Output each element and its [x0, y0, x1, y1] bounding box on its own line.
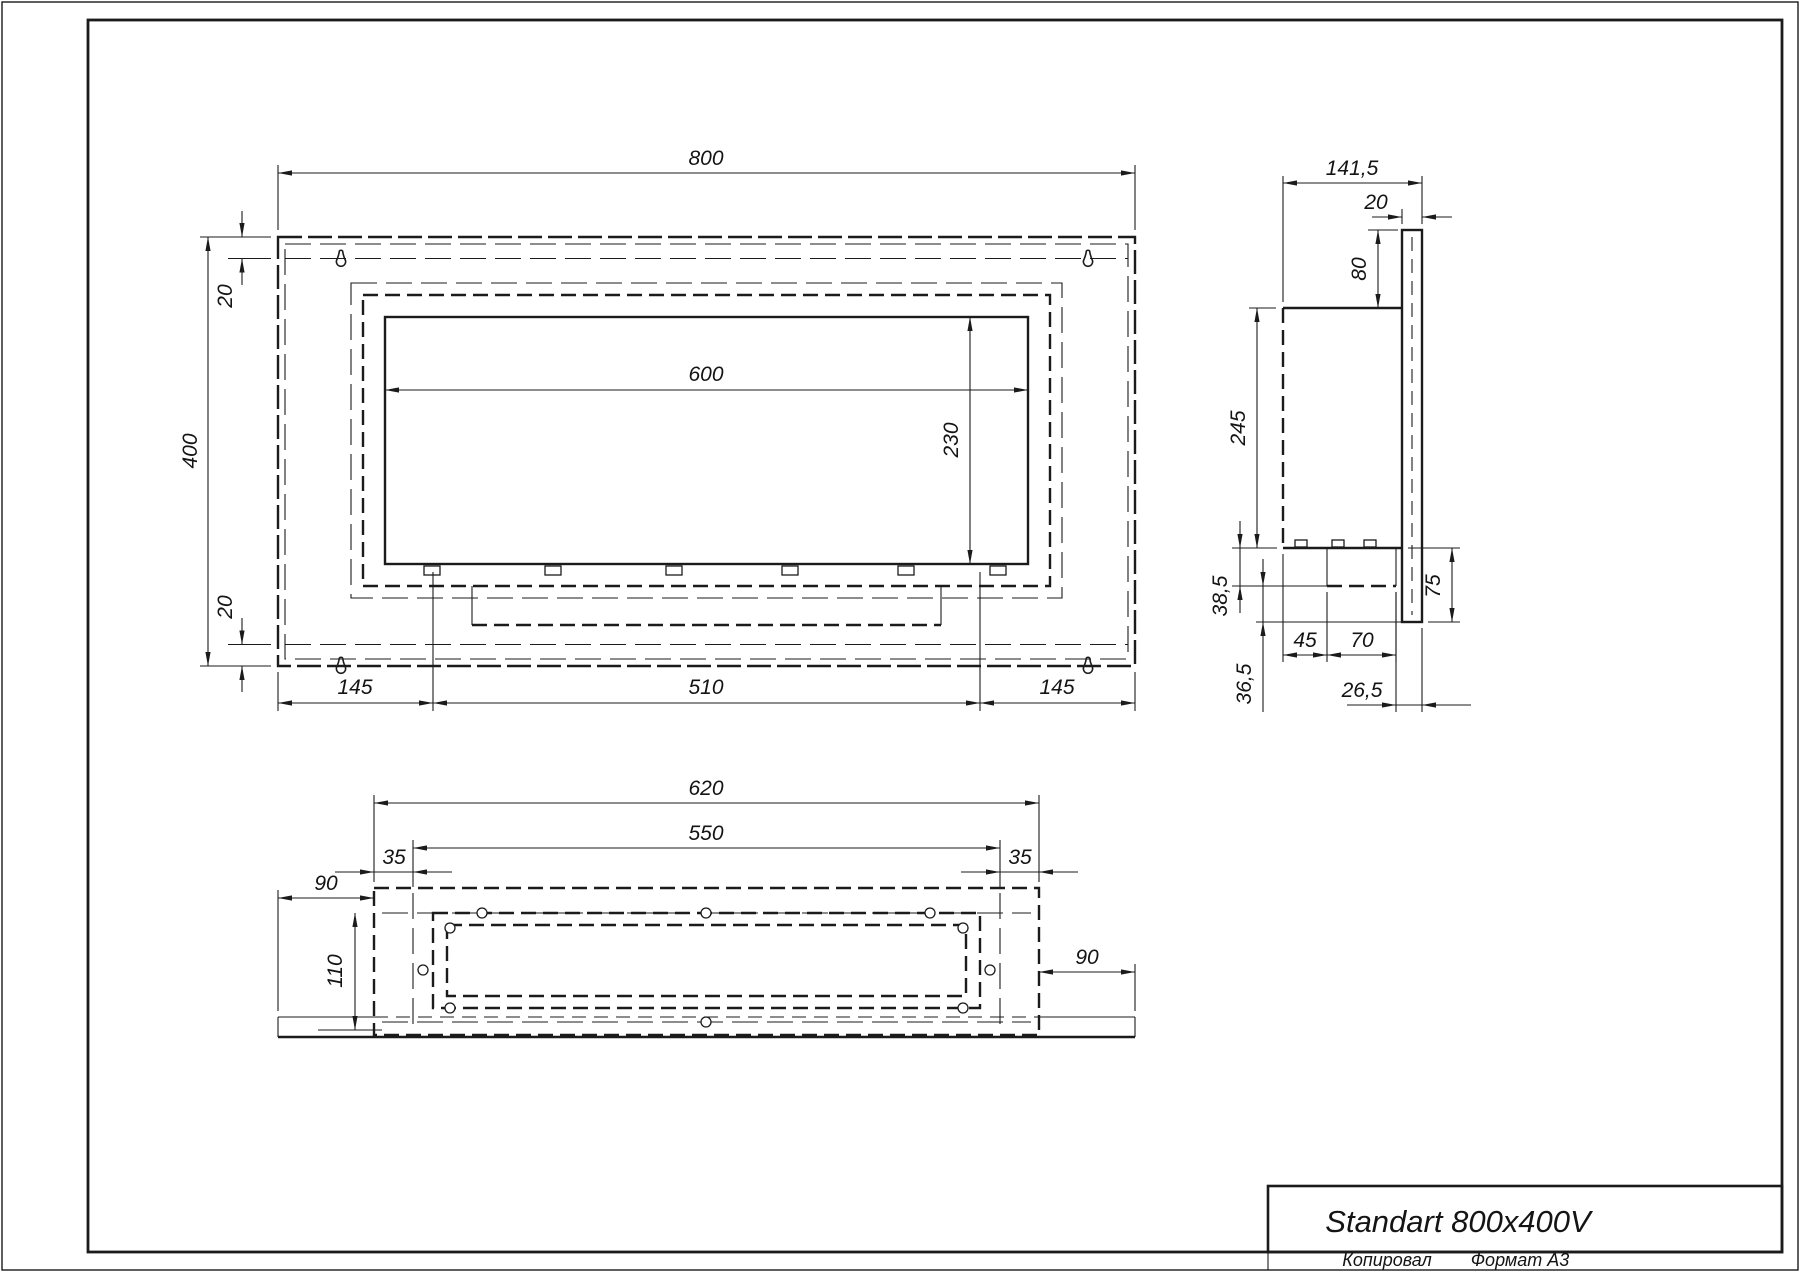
- drawing-frame: [88, 20, 1782, 1252]
- dim-side-lower-height: 75: [1422, 574, 1445, 598]
- vent-tab: [898, 566, 914, 575]
- dim-bottom-left-flange: 90: [314, 872, 338, 895]
- footer-copied-label: Копировал: [1342, 1250, 1432, 1270]
- sheet-outer-border: [2, 2, 1798, 1270]
- dim-side-body-height: 245: [1227, 410, 1250, 446]
- dim-front-left-margin: 145: [337, 676, 372, 699]
- dim-front-burner-width: 510: [688, 676, 723, 699]
- dim-front-overall-height: 400: [179, 433, 202, 468]
- drawing-title: Standart 800x400V: [1325, 1204, 1594, 1239]
- keyhole-slot-top-right: [1083, 250, 1092, 266]
- front-inner-face: [285, 244, 1128, 659]
- screw-hole: [418, 965, 428, 975]
- dim-front-overall-width: 800: [688, 147, 723, 170]
- dim-bottom-inner-depth: 110: [324, 954, 347, 988]
- dim-front-top-inset: 20: [214, 284, 237, 309]
- footer-format-label: Формат А3: [1471, 1250, 1570, 1270]
- bottom-burner-outline: [433, 913, 980, 1008]
- screw-hole: [445, 923, 455, 933]
- vent-tab: [782, 566, 798, 575]
- dim-bottom-left-inset: 35: [382, 846, 406, 869]
- dim-bottom-right-flange: 90: [1075, 946, 1099, 969]
- screw-hole: [701, 908, 711, 918]
- dim-side-lower-drop: 36,5: [1233, 663, 1256, 704]
- side-view: 141,5 20 80 245 38,5 36,5: [1209, 157, 1471, 712]
- dim-side-tray-offset: 45: [1293, 629, 1317, 652]
- front-view: 800 400 20 20 600 230 145 510 145: [179, 147, 1135, 711]
- dim-side-rear-gap: 26,5: [1341, 679, 1383, 702]
- dim-bottom-body-width: 620: [688, 777, 723, 800]
- screw-hole: [958, 923, 968, 933]
- drawing-sheet: 800 400 20 20 600 230 145 510 145: [0, 0, 1800, 1273]
- title-block: Standart 800x400V Копировал Формат А3: [1268, 1186, 1782, 1270]
- screw-hole: [925, 908, 935, 918]
- dim-side-top-offset: 80: [1348, 257, 1371, 281]
- dim-side-tray-drop: 38,5: [1209, 575, 1232, 616]
- vent-tab: [1332, 540, 1344, 547]
- vent-tab: [424, 566, 440, 575]
- vent-tab: [666, 566, 682, 575]
- dim-side-tray-width: 70: [1350, 629, 1374, 652]
- drawing-canvas: 800 400 20 20 600 230 145 510 145: [0, 0, 1800, 1273]
- bottom-view: 620 550 35 35 90 110 90: [278, 777, 1135, 1037]
- dim-bottom-right-inset: 35: [1008, 846, 1032, 869]
- dim-side-panel-thickness: 20: [1363, 191, 1388, 214]
- front-opening: [385, 317, 1028, 564]
- dim-front-opening-width: 600: [688, 363, 723, 386]
- screw-hole: [985, 965, 995, 975]
- dim-side-overall-depth: 141,5: [1326, 157, 1379, 180]
- vent-tab: [1364, 540, 1376, 547]
- vent-tab: [990, 566, 1006, 575]
- front-outer-panel: [278, 237, 1135, 666]
- vent-tab: [1295, 540, 1307, 547]
- screw-hole: [477, 908, 487, 918]
- vent-tab: [545, 566, 561, 575]
- bottom-burner-inner: [447, 925, 966, 996]
- screw-hole: [958, 1003, 968, 1013]
- dim-front-bottom-inset: 20: [214, 595, 237, 620]
- screw-hole: [701, 1017, 711, 1027]
- dim-bottom-inner-width: 550: [688, 822, 723, 845]
- dim-front-right-margin: 145: [1039, 676, 1074, 699]
- screw-hole: [445, 1003, 455, 1013]
- dim-front-opening-height: 230: [940, 422, 963, 458]
